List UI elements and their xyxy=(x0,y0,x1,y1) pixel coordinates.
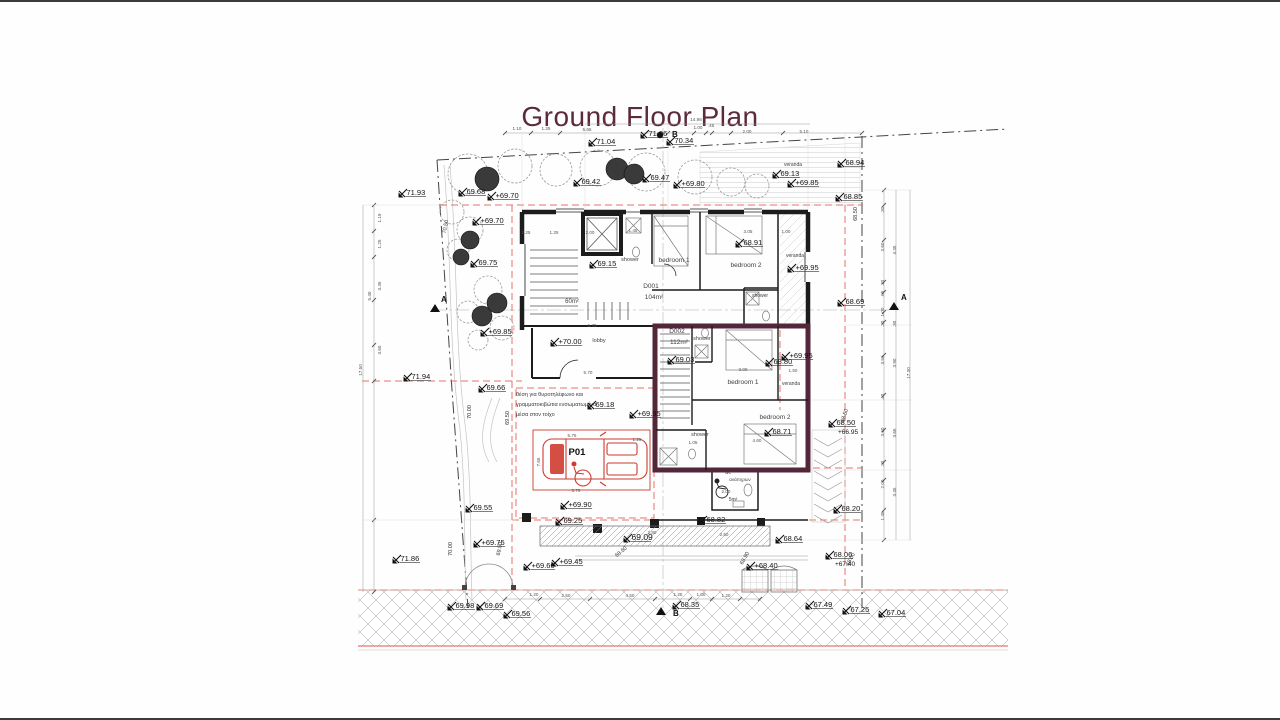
spot-level: 69.42 xyxy=(574,177,602,187)
room-label: D001 xyxy=(643,283,659,290)
spot-level: +69.45 xyxy=(552,557,584,567)
dim-label: 17.50 xyxy=(358,364,363,376)
spot-level-value: 67.49 xyxy=(814,600,833,609)
spot-level: 68.64 xyxy=(776,534,804,544)
dim-label: 1.25 xyxy=(542,126,551,131)
dim-label: 5.70 xyxy=(584,370,593,375)
dim-label: 3.00 xyxy=(739,367,748,372)
spot-level-value: +69.90 xyxy=(569,500,592,509)
spot-level: +70.00 xyxy=(551,337,583,347)
spot-level: +69.85 xyxy=(481,327,513,337)
dim-label: 2.00 xyxy=(880,479,885,488)
dim-label: 2.50 xyxy=(720,532,729,537)
spot-level: 69.55 xyxy=(466,503,494,513)
spot-level-value: 69.18 xyxy=(596,400,615,409)
spot-level-value: +69.80 xyxy=(682,179,705,188)
spot-level-value: 67.04 xyxy=(887,608,906,617)
spot-level-value: 68.35 xyxy=(681,600,700,609)
spot-level-value: 71.94 xyxy=(412,372,431,381)
dim-label: 1.25 xyxy=(633,437,642,442)
floor-plan-drawing: showerbedroom 1bedroom 2showerveranda60m… xyxy=(0,0,1280,720)
dim-label: .30 xyxy=(892,320,897,327)
note-line: μέσα στον τοίχο xyxy=(516,411,555,418)
room-label: 112m² xyxy=(670,339,689,346)
dim-label: 3.05 xyxy=(744,229,753,234)
spot-level-value: +69.75 xyxy=(482,538,505,547)
spot-level-value: 69.68 xyxy=(467,187,486,196)
room-label: wc xyxy=(725,470,732,476)
dim-label: 17.30 xyxy=(906,367,911,379)
spot-level: +69.60 xyxy=(524,561,556,571)
spot-level-value: +69.85 xyxy=(796,178,819,187)
spot-level: 68.91 xyxy=(736,238,764,248)
spot-level: +69.95 xyxy=(630,409,662,419)
spot-level: 69.75 xyxy=(471,258,499,268)
spot-level-value: +69.85 xyxy=(489,327,512,336)
gate-arcs xyxy=(462,564,516,590)
dim-label: 1.45 xyxy=(629,228,638,233)
dim-label: 2.50 xyxy=(562,593,571,598)
dim-label: 3.50 xyxy=(880,355,885,364)
spot-level-value: 68.94 xyxy=(846,158,865,167)
spot-level: +69.70 xyxy=(488,191,520,201)
dim-label: 2.00 xyxy=(586,230,595,235)
spot-level-value: 69.03 xyxy=(676,355,695,364)
spot-level: 69.66 xyxy=(479,383,507,393)
spot-level-value: 68.82 xyxy=(707,515,726,524)
spot-level: +69.75 xyxy=(474,538,506,548)
room-label: 104m² xyxy=(645,294,664,301)
spot-level: 69.25 xyxy=(556,516,584,526)
dim-label: 1.20 xyxy=(530,592,539,597)
dim-label: 3.90 xyxy=(892,358,897,367)
level-annotation: 70.00 xyxy=(467,405,473,419)
section-marker-icon xyxy=(657,132,663,138)
spot-level: 71.94 xyxy=(404,372,432,382)
ramp-hatch xyxy=(812,430,845,523)
spot-level-value: +69.95 xyxy=(796,263,819,272)
spot-level-value: 68.71 xyxy=(773,427,792,436)
section-marker: A xyxy=(430,295,447,312)
note-line: θέση για θυροτηλέφωνο και xyxy=(516,391,584,398)
room-label: veranda xyxy=(784,162,802,168)
spot-level-value: +69.70 xyxy=(496,191,519,200)
spot-level-value: 69.15 xyxy=(598,259,617,268)
dim-label: 7.65 xyxy=(536,457,541,466)
dim-label: 3.65 xyxy=(892,428,897,437)
stairs-and-elevator xyxy=(530,214,690,418)
room-label: veranda xyxy=(782,381,800,387)
room-label: shower xyxy=(621,257,639,263)
dim-label: .65 xyxy=(880,290,885,297)
room-label: P01 xyxy=(569,447,587,458)
building-walls xyxy=(522,209,808,520)
dim-label: 1.00 xyxy=(694,125,703,130)
spot-level-value: 68.85 xyxy=(844,192,863,201)
room-label: D002 xyxy=(669,328,685,335)
dim-label: 6.70 xyxy=(588,323,597,328)
dim-label: 3.60 xyxy=(880,427,885,436)
dim-label: 3.60 xyxy=(880,242,885,251)
spot-level-value: 69.69 xyxy=(485,601,504,610)
room-label: bedroom 2 xyxy=(759,414,790,421)
room-label: veranda xyxy=(786,253,804,259)
dim-label: 1.45 xyxy=(880,511,885,520)
spot-level-value: 69.09 xyxy=(632,532,654,542)
dim-label: .30 xyxy=(880,320,885,327)
section-marker-icon xyxy=(430,304,440,312)
spot-level-value: 69.98 xyxy=(456,601,475,610)
spot-level-value-2: +67.40 xyxy=(835,561,855,568)
section-marker-letter: B xyxy=(673,609,679,618)
spot-level-value: 68.20 xyxy=(842,504,861,513)
dim-label: 5.10 xyxy=(800,129,809,134)
spot-level-value: +69.95 xyxy=(790,351,813,360)
dim-label: 1.10 xyxy=(513,126,522,131)
section-marker-letter: B xyxy=(672,130,678,139)
spot-level-value: 68.69 xyxy=(846,297,865,306)
spot-level: 71.04 xyxy=(589,137,617,147)
dim-label: 1.00 xyxy=(697,592,706,597)
spot-level: 70.34 xyxy=(667,136,695,146)
spot-level: 71.86 xyxy=(393,554,421,564)
dim-label: .30 xyxy=(880,206,885,213)
room-label: bedroom 1 xyxy=(727,379,758,386)
dim-label: .40 xyxy=(880,393,885,400)
spot-level: 69.68 xyxy=(459,187,487,197)
note-line: γραμματοκιβώτια ενσωματωμένα xyxy=(516,401,597,408)
spot-level: 68.50+66.95 xyxy=(829,418,859,436)
room-label: lobby xyxy=(592,338,605,344)
dim-label: 2.00 xyxy=(743,129,752,134)
spot-level-value-2: +66.95 xyxy=(838,429,858,436)
room-label: ανάπηρων xyxy=(729,476,751,482)
dim-label: 4.50 xyxy=(626,593,635,598)
note-text-layer: θέση για θυροτηλέφωνο καιγραμματοκιβώτια… xyxy=(516,391,597,418)
spot-level-value: 69.75 xyxy=(479,258,498,267)
floor-plan-page: Ground Floor Plan xyxy=(0,0,1280,720)
spot-level-value: +69.70 xyxy=(481,216,504,225)
dim-label: 3.60 xyxy=(377,345,382,354)
dim-label: 1.25 xyxy=(522,230,531,235)
spot-level: +69.90 xyxy=(561,500,593,510)
dim-label: 1.20 xyxy=(722,593,731,598)
room-label: shower xyxy=(752,293,768,299)
spot-level-value: 68.50 xyxy=(837,418,856,427)
dim-label: 3.45 xyxy=(377,281,382,290)
room-label: 60m² xyxy=(565,299,579,305)
level-annotation: 68.90 xyxy=(739,551,751,566)
dim-label: 1.25 xyxy=(674,592,683,597)
dim-label: .30 xyxy=(880,460,885,467)
spot-level-value: 68.91 xyxy=(744,238,763,247)
section-marker-letter: A xyxy=(901,293,907,302)
dim-label: .45 xyxy=(708,123,715,128)
dim-label: 1.00 xyxy=(880,307,885,316)
level-annotation: 70.00 xyxy=(448,542,454,556)
section-marker: A xyxy=(889,293,907,310)
dim-label: .30 xyxy=(880,279,885,286)
section-marker-letter: A xyxy=(441,295,447,304)
dim-label: 5.75 xyxy=(572,488,581,493)
spot-level: 69.15 xyxy=(590,259,618,269)
dim-label: 2.00 xyxy=(722,489,731,494)
dim-label: 3.45 xyxy=(892,487,897,496)
level-annotation: 68.50 xyxy=(853,207,859,221)
spot-level: 71.93 xyxy=(399,188,427,198)
spot-level-value: 69.42 xyxy=(582,177,601,186)
dim-label: 5.40 xyxy=(367,291,372,300)
spot-level-value: +69.95 xyxy=(638,409,661,418)
dim-label: 1.00 xyxy=(782,229,791,234)
spot-level-value: 71.04 xyxy=(597,137,616,146)
spot-level: +68.40 xyxy=(747,561,779,571)
room-label: shower xyxy=(691,432,709,438)
spot-level-value: 69.13 xyxy=(781,169,800,178)
spot-level: 68.20 xyxy=(834,504,862,514)
level-annotation: 70.50 xyxy=(442,219,451,234)
dim-label: 14.98 xyxy=(690,117,702,122)
dim-label: 1.25 xyxy=(377,239,382,248)
spot-level: 68.69 xyxy=(838,297,866,307)
dim-label: 5.65 xyxy=(583,127,592,132)
dim-label: 1.19 xyxy=(377,213,382,222)
spot-level-value: 69.25 xyxy=(564,516,583,525)
spot-level-value: +70.00 xyxy=(559,337,582,346)
spot-level-value: +68.40 xyxy=(755,561,778,570)
spot-level: +69.70 xyxy=(473,216,505,226)
spot-level-value: 67.25 xyxy=(851,605,870,614)
level-annotation: 68.60 xyxy=(614,546,628,559)
dim-label: 4.35 xyxy=(892,245,897,254)
dim-label: 5.75 xyxy=(568,433,577,438)
spot-level: 71.06 xyxy=(641,129,669,139)
section-marker-icon xyxy=(889,302,899,310)
spot-level-value: 69.66 xyxy=(487,383,506,392)
spot-level-value: +69.60 xyxy=(532,561,555,570)
spot-level: 68.71 xyxy=(765,427,793,437)
room-label: 5m² xyxy=(729,497,738,503)
spot-level-value: 68.06 xyxy=(834,550,853,559)
spot-level-value: +69.45 xyxy=(560,557,583,566)
spot-level-value: 69.56 xyxy=(512,609,531,618)
spot-level-value: 69.47 xyxy=(651,173,670,182)
level-annotation: 69.50 xyxy=(505,411,511,425)
spot-level-value: 71.93 xyxy=(407,188,426,197)
spot-level-value: 68.64 xyxy=(784,534,803,543)
spot-level: 69.47 xyxy=(643,173,671,183)
spot-level-value: 71.86 xyxy=(401,554,420,563)
room-label: bedroom 1 xyxy=(658,257,689,264)
room-label: shower xyxy=(693,336,711,342)
dim-label: 1.50 xyxy=(789,368,798,373)
spot-level: 69.03 xyxy=(668,355,696,365)
dim-label: 1.05 xyxy=(689,440,698,445)
room-label: bedroom 2 xyxy=(730,262,761,269)
spot-level-value: 69.55 xyxy=(474,503,493,512)
dim-label: 1.25 xyxy=(550,230,559,235)
dim-label: 4.60 xyxy=(753,438,762,443)
